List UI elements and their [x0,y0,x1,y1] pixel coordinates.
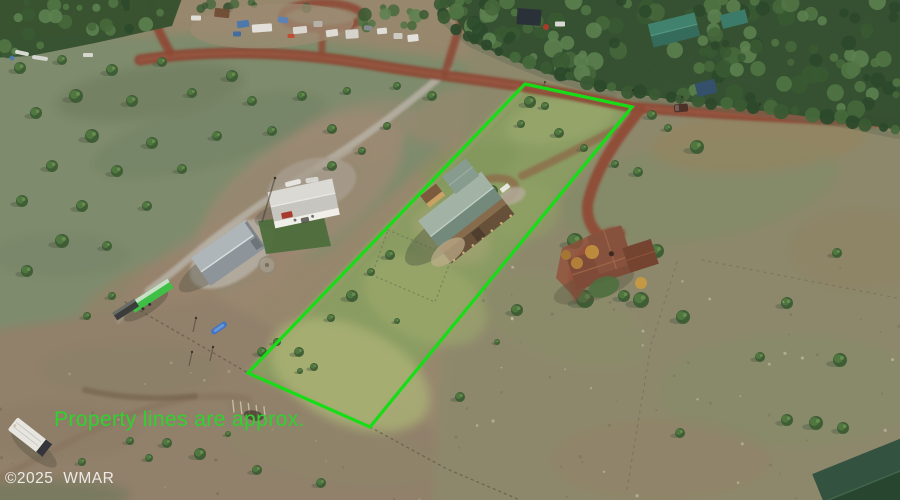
property-lines-caption: Property lines are approx. [54,408,305,432]
copyright-watermark: ©2025 WMAR [5,470,114,488]
aerial-photo-container: Property lines are approx. ©2025 WMAR [0,0,900,500]
